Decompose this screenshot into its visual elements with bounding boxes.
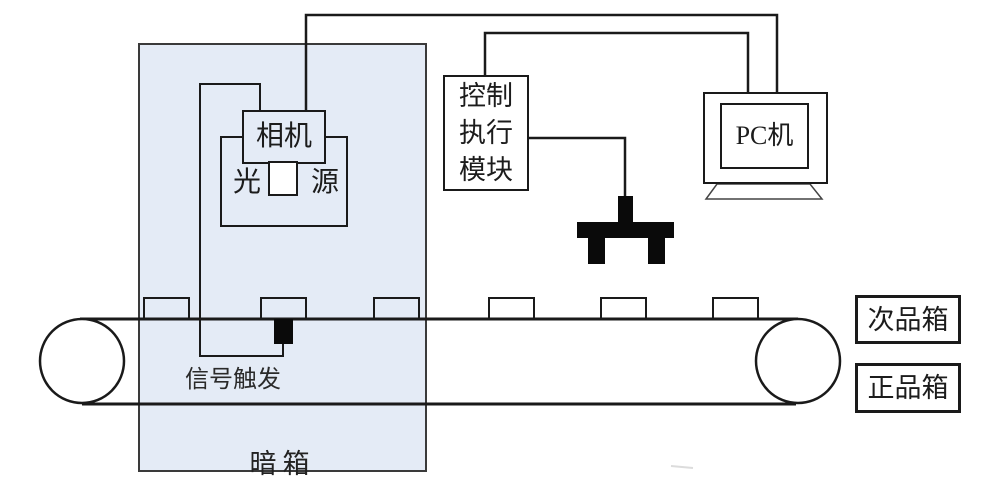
trigger-sensor (274, 319, 293, 344)
control-module-line2: 执行 (445, 115, 527, 152)
belt-item (600, 297, 647, 319)
left-roller (40, 319, 124, 403)
pc-screen: PC机 (720, 103, 809, 169)
belt-item (143, 297, 190, 319)
gripper-actuator (577, 196, 674, 264)
control-module-line1: 控制 (445, 78, 527, 115)
module-to-gripper-wire (528, 138, 625, 197)
diagram-lines-layer (0, 0, 984, 489)
belt-item (712, 297, 759, 319)
control-module-box: 控制 执行 模块 (443, 75, 529, 191)
vision-sorting-diagram: 光 源 相机 控制 执行 模块 PC机 信号触发 暗箱 次品箱 正品箱 (0, 0, 984, 489)
right-roller (756, 319, 840, 403)
light-source-label-right: 源 (311, 169, 339, 197)
scan-artifact (671, 466, 693, 468)
control-module-line3: 模块 (445, 152, 527, 189)
light-source-label-left: 光 (233, 169, 261, 197)
belt-item (488, 297, 535, 319)
pc-stand (706, 184, 822, 199)
camera-lens (268, 161, 298, 196)
camera-box: 相机 (242, 110, 326, 164)
reject-bin-box: 次品箱 (855, 295, 961, 344)
belt-item (373, 297, 420, 319)
dark-box-label: 暗箱 (138, 442, 427, 481)
belt-item (260, 297, 307, 319)
accept-bin-box: 正品箱 (855, 363, 961, 413)
trigger-label: 信号触发 (177, 367, 289, 393)
